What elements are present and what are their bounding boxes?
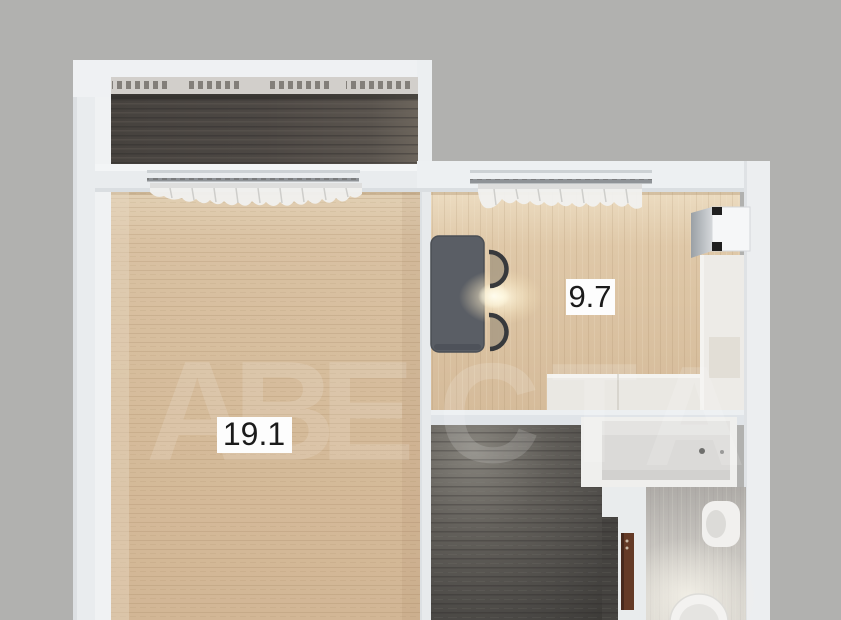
svg-text:Т: Т (551, 334, 638, 493)
svg-text:А: А (643, 337, 746, 496)
svg-text:9.7: 9.7 (568, 279, 611, 314)
svg-text:С: С (438, 334, 541, 493)
svg-text:19.1: 19.1 (223, 416, 285, 452)
svg-text:Е: Е (320, 332, 415, 491)
